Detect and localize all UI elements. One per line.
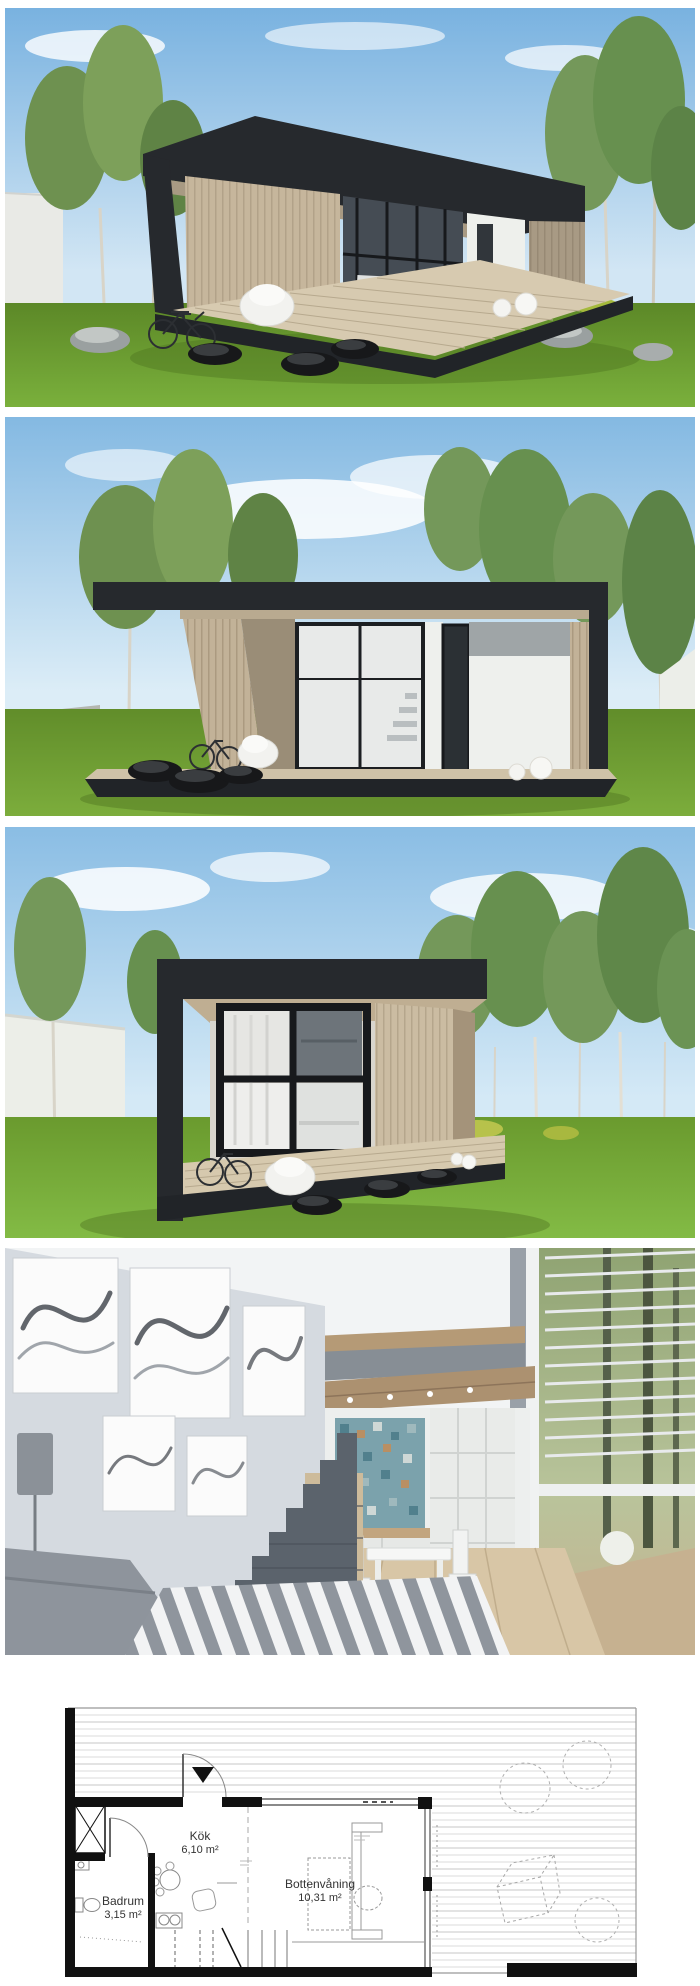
exterior-end-svg [5,827,695,1238]
exterior-render-side [5,417,695,816]
deck-base [85,779,617,797]
interior-render [5,1248,695,1655]
armchair [191,1888,217,1912]
badrum-area: 3,15 m² [104,1909,142,1921]
bottenvaning-label: Bottenvåning [285,1877,355,1891]
top-wall-mid [222,1797,262,1807]
white-pillar [425,622,443,771]
loft [305,1326,535,1413]
kok-area: 6,10 m² [181,1844,219,1856]
badrum-label: Badrum [102,1894,144,1908]
roof-slab [157,959,487,999]
window-mullion-h [539,1484,695,1496]
deck-edge-bar [507,1963,637,1977]
roof-slab [93,582,608,610]
outdoor-beanbag [600,1531,634,1565]
kok-label: Kök [190,1829,212,1843]
sink [78,1862,84,1868]
exterior-side-svg [5,417,695,816]
window-grid [220,1007,367,1153]
deco-sphere [451,1153,463,1165]
toilet-bowl [84,1899,100,1912]
end-wood-sliver [570,622,589,771]
toilet-tank [75,1898,83,1912]
right-edge [589,610,608,782]
floor-plan: Kök 6,10 m² Badrum 3,15 m² Bottenvåning … [0,1655,700,1986]
wood-side-wall [375,1003,453,1161]
deco-sphere [509,764,525,780]
wood-side-edge [453,1009,475,1157]
bottom-wall [65,1967,432,1977]
floor-plan-svg: Kök 6,10 m² Badrum 3,15 m² Bottenvåning … [0,1655,700,1986]
table [367,1548,451,1560]
left-wall [157,959,183,1221]
round-table [160,1870,180,1890]
bottenvaning-area: 10,31 m² [298,1892,342,1904]
background-building [5,193,63,311]
right-wall-block [423,1877,432,1891]
exterior-render-end [5,827,695,1238]
striped-throw [125,1576,510,1655]
boulder [633,343,673,361]
interior-svg [5,1248,695,1655]
narrow-window [443,625,469,771]
clerestory-band [469,622,570,656]
deco-sphere [530,757,552,779]
exterior-front-svg [5,8,695,407]
corner-block [418,1797,432,1809]
bath-right-wall [148,1853,155,1970]
bath-wall-stub [65,1853,105,1861]
pin-image: Kök 6,10 m² Badrum 3,15 m² Bottenvåning … [0,0,700,1986]
deco-sphere [493,299,511,317]
deco-sphere [462,1155,476,1169]
deco-sphere [515,293,537,315]
exterior-render-front [5,8,695,407]
roof-underside [180,610,590,619]
left-wall [65,1708,75,1977]
